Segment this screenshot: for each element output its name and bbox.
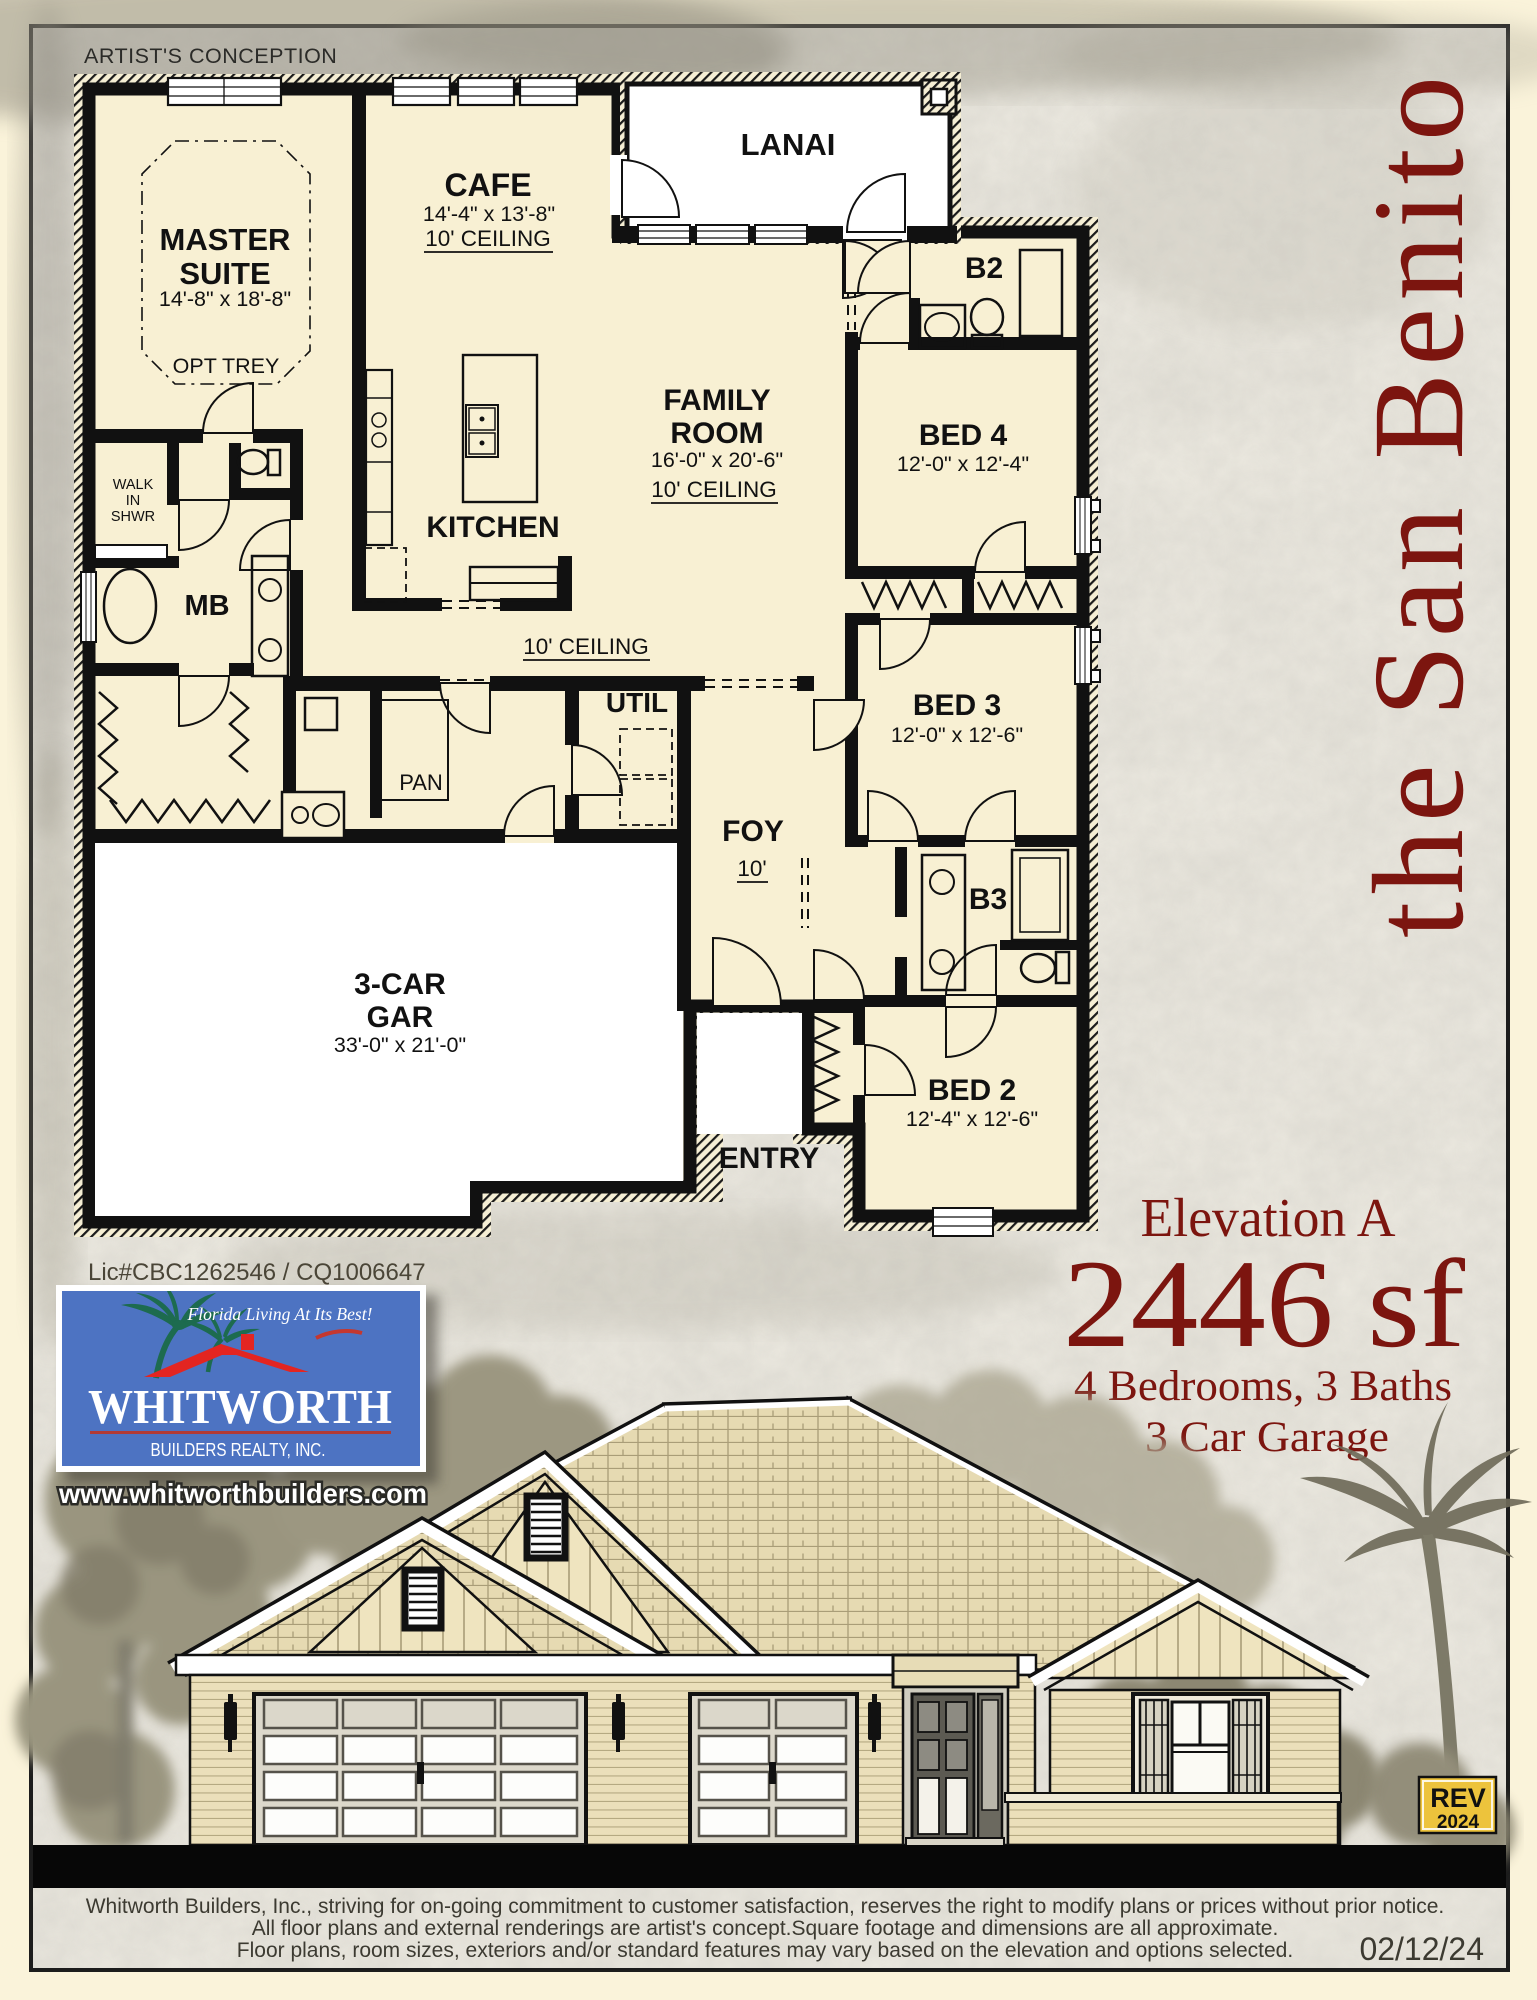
svg-text:MB: MB: [184, 590, 229, 622]
svg-text:WALK: WALK: [113, 477, 154, 493]
svg-text:12'-0" x 12'-4": 12'-0" x 12'-4": [897, 452, 1029, 476]
svg-text:GAR: GAR: [367, 1001, 434, 1034]
svg-text:CAFE: CAFE: [444, 167, 531, 203]
svg-text:MASTER: MASTER: [160, 222, 291, 257]
svg-text:WHITWORTH: WHITWORTH: [88, 1379, 392, 1434]
svg-text:Floor plans, room sizes, exter: Floor plans, room sizes, exteriors and/o…: [237, 1939, 1293, 1962]
svg-text:14'-8" x 18'-8": 14'-8" x 18'-8": [159, 287, 291, 311]
svg-text:Whitworth Builders, Inc., stri: Whitworth Builders, Inc., striving for o…: [86, 1895, 1445, 1918]
svg-text:Lic#CBC1262546 / CQ1006647: Lic#CBC1262546 / CQ1006647: [88, 1259, 426, 1286]
svg-text:33'-0" x 21'-0": 33'-0" x 21'-0": [334, 1033, 466, 1057]
svg-text:12'-4" x 12'-6": 12'-4" x 12'-6": [906, 1107, 1038, 1131]
svg-text:BED 2: BED 2: [928, 1074, 1016, 1107]
svg-text:FOY: FOY: [722, 815, 784, 848]
svg-text:16'-0" x 20'-6": 16'-0" x 20'-6": [651, 448, 783, 472]
svg-text:OPT TREY: OPT TREY: [173, 354, 280, 378]
svg-text:2024: 2024: [1437, 1812, 1480, 1833]
svg-text:3-CAR: 3-CAR: [354, 968, 446, 1001]
svg-text:KITCHEN: KITCHEN: [426, 511, 559, 544]
svg-text:12'-0" x 12'-6": 12'-0" x 12'-6": [891, 723, 1023, 747]
svg-text:FAMILY: FAMILY: [663, 384, 770, 417]
svg-text:B3: B3: [969, 883, 1007, 916]
svg-text:BED 3: BED 3: [913, 689, 1001, 722]
svg-text:www.whitworthbuilders.com: www.whitworthbuilders.com: [58, 1478, 427, 1509]
svg-text:UTIL: UTIL: [606, 687, 668, 718]
svg-text:4 Bedrooms, 3 Baths: 4 Bedrooms, 3 Baths: [1074, 1363, 1452, 1410]
svg-text:PAN: PAN: [399, 770, 443, 795]
svg-text:2446 sf: 2446 sf: [1063, 1235, 1465, 1374]
svg-text:SHWR: SHWR: [111, 509, 155, 525]
svg-text:IN: IN: [126, 493, 141, 509]
svg-text:All floor plans and external r: All floor plans and external renderings …: [252, 1917, 1279, 1940]
svg-text:10' CEILING: 10' CEILING: [651, 477, 777, 502]
svg-text:B2: B2: [965, 252, 1003, 285]
svg-text:10': 10': [737, 856, 766, 881]
svg-text:Florida Living At Its Best!: Florida Living At Its Best!: [187, 1304, 373, 1324]
svg-text:ENTRY: ENTRY: [719, 1142, 820, 1175]
svg-text:BUILDERS REALTY, INC.: BUILDERS REALTY, INC.: [151, 1440, 326, 1460]
svg-text:SUITE: SUITE: [179, 256, 270, 291]
svg-text:10' CEILING: 10' CEILING: [523, 634, 649, 659]
svg-text:REV: REV: [1430, 1783, 1486, 1813]
svg-text:14'-4" x 13'-8": 14'-4" x 13'-8": [423, 202, 555, 226]
svg-text:LANAI: LANAI: [741, 127, 836, 162]
svg-text:ARTIST'S CONCEPTION: ARTIST'S CONCEPTION: [84, 44, 337, 68]
svg-text:02/12/24: 02/12/24: [1359, 1931, 1484, 1967]
svg-text:10' CEILING: 10' CEILING: [425, 226, 551, 251]
svg-text:BED 4: BED 4: [919, 419, 1008, 452]
svg-text:ROOM: ROOM: [670, 417, 763, 450]
